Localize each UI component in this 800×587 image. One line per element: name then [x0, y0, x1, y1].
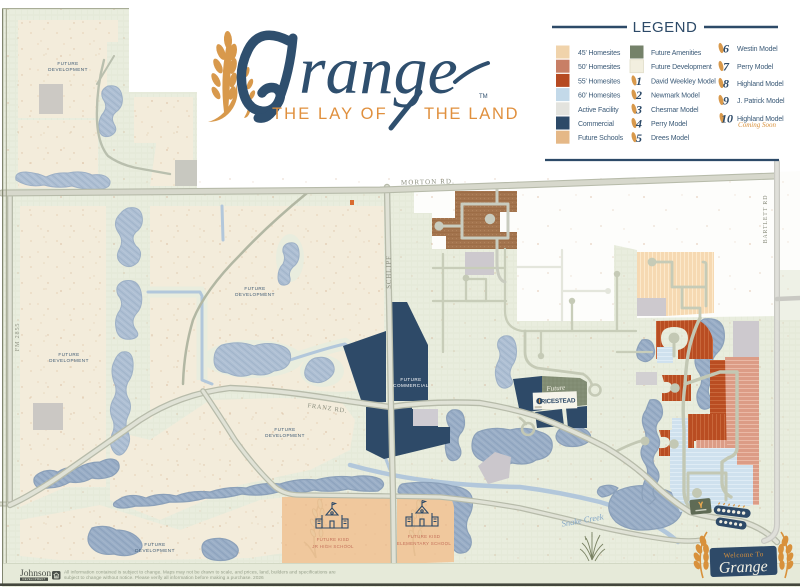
svg-text:DEVELOPMENT: DEVELOPMENT [265, 433, 305, 438]
svg-text:3: 3 [635, 102, 642, 116]
svg-text:50' Homesites: 50' Homesites [578, 64, 621, 71]
svg-text:All information contained is s: All information contained is subject to … [64, 570, 336, 576]
svg-text:Future Development: Future Development [651, 64, 712, 71]
svg-text:FUTURE: FUTURE [244, 286, 265, 291]
svg-text:COMMERCIAL: COMMERCIAL [393, 383, 429, 388]
svg-text:range: range [299, 32, 458, 108]
svg-text:FUTURE KISD: FUTURE KISD [317, 537, 350, 542]
svg-text:6: 6 [723, 42, 729, 56]
svg-text:Future Schools: Future Schools [578, 135, 624, 142]
svg-text:FUTURE KISD: FUTURE KISD [408, 534, 441, 539]
svg-text:BARTLETT RD: BARTLETT RD [763, 195, 769, 244]
svg-text:2: 2 [635, 88, 642, 102]
svg-text:TM: TM [479, 94, 488, 100]
svg-text:Future: Future [545, 384, 565, 393]
svg-text:David Weekley Model: David Weekley Model [651, 78, 716, 85]
svg-text:Newmark Model: Newmark Model [651, 93, 700, 100]
svg-text:LEGEND: LEGEND [633, 19, 698, 36]
svg-text:FUTURE: FUTURE [274, 427, 295, 432]
svg-text:subject to change without noti: subject to change without notice. Please… [64, 575, 264, 581]
svg-text:4: 4 [635, 117, 642, 131]
svg-text:8: 8 [723, 77, 729, 91]
svg-text:Chesmar Model: Chesmar Model [651, 107, 699, 114]
svg-text:Grange: Grange [718, 558, 767, 577]
svg-text:9: 9 [723, 94, 729, 108]
svg-text:DEVELOPMENT: DEVELOPMENT [135, 548, 175, 553]
svg-text:Future Amenities: Future Amenities [651, 50, 702, 57]
svg-text:Coming Soon: Coming Soon [738, 121, 776, 129]
svg-text:FUTURE: FUTURE [144, 542, 165, 547]
svg-text:ELEMENTARY SCHOOL: ELEMENTARY SCHOOL [397, 541, 451, 546]
svg-text:DEVELOPMENT: DEVELOPMENT [23, 577, 46, 581]
svg-text:Perry Model: Perry Model [651, 121, 688, 128]
svg-text:7: 7 [723, 60, 730, 74]
svg-text:Highland Model: Highland Model [737, 81, 784, 88]
svg-text:DEVELOPMENT: DEVELOPMENT [49, 358, 89, 363]
svg-text:Drees Model: Drees Model [651, 135, 690, 142]
svg-text:DEVELOPMENT: DEVELOPMENT [48, 67, 88, 72]
svg-text:10: 10 [721, 112, 733, 126]
svg-text:RICESTEAD: RICESTEAD [541, 397, 576, 405]
svg-text:1: 1 [636, 74, 642, 88]
svg-text:DEVELOPMENT: DEVELOPMENT [235, 292, 275, 297]
svg-text:45' Homesites: 45' Homesites [578, 50, 621, 57]
svg-text:5: 5 [636, 131, 642, 145]
svg-text:THE LAY OF: THE LAY OF [272, 105, 388, 123]
svg-text:FUTURE: FUTURE [400, 377, 421, 382]
svg-text:55' Homesites: 55' Homesites [578, 78, 621, 85]
svg-text:J. Patrick Model: J. Patrick Model [737, 98, 785, 105]
svg-text:Westin Model: Westin Model [737, 46, 778, 53]
svg-text:FM 2855: FM 2855 [14, 323, 21, 351]
svg-text:FUTURE: FUTURE [58, 352, 79, 357]
svg-text:60' Homesites: 60' Homesites [578, 93, 621, 100]
svg-text:Perry Model: Perry Model [737, 64, 774, 71]
svg-text:SCHLIPF: SCHLIPF [386, 255, 393, 289]
svg-text:Active Facility: Active Facility [578, 107, 619, 114]
svg-text:Commercial: Commercial [578, 121, 614, 128]
svg-text:MORTON RD.: MORTON RD. [401, 177, 455, 186]
svg-text:JR HIGH SCHOOL: JR HIGH SCHOOL [312, 544, 354, 549]
svg-text:THE LAND: THE LAND [424, 105, 519, 123]
svg-text:FUTURE: FUTURE [57, 61, 78, 66]
